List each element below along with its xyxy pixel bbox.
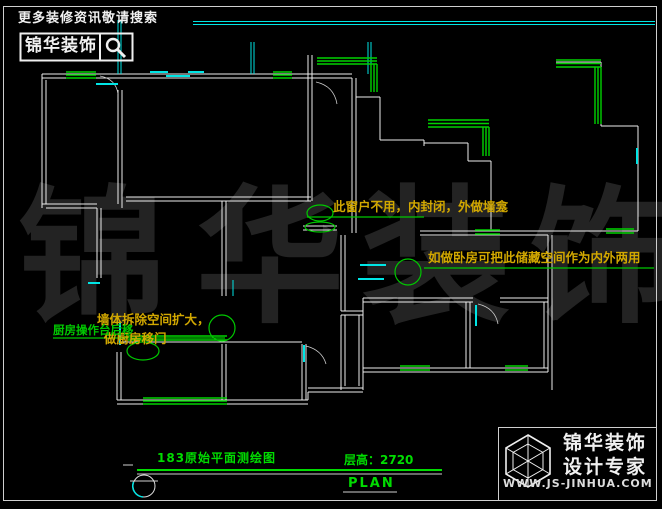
footer-brand-line1: 锦华装饰: [563, 433, 647, 454]
footer-website: WWW.JS-JINHUA.COM: [503, 478, 653, 490]
walls: [42, 55, 638, 404]
cad-sheet: 锦 华 装 饰: [0, 0, 662, 509]
search-icon: [107, 39, 125, 57]
brand-name: 锦华装饰: [25, 37, 97, 56]
footer-brand-line2: 设计专家: [563, 457, 647, 478]
annotation-window-note: 此窗户不用，内封闭，外做墙龛: [333, 200, 508, 214]
plan-label: PLAN: [348, 477, 395, 491]
floor-height: 层高：2720: [344, 454, 413, 467]
datum-circle-arc: [133, 482, 143, 497]
annotation-kitchen-note: 厨房操作台后移: [53, 324, 134, 337]
search-hint-text: 更多装修资讯敬请搜索: [18, 12, 158, 26]
annotation-storage-note: 如做卧房可把此储藏空间作为内外两用: [428, 251, 641, 265]
drawing-title: 183原始平面测绘图: [157, 452, 276, 465]
